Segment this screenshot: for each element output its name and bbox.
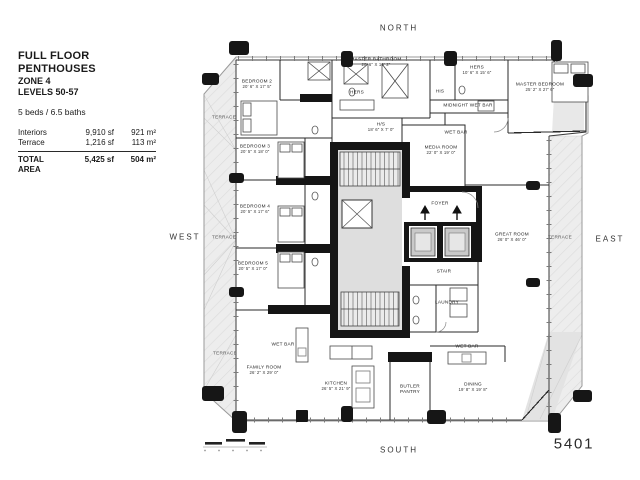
page-title: FULL FLOOR PENTHOUSES [18, 50, 168, 76]
compass-west: WEST [169, 233, 200, 242]
area-table: Interiors 9,910 sf 921 m² Terrace 1,216 … [18, 128, 156, 175]
elevator-bank [404, 222, 482, 262]
compass-south: SOUTH [380, 446, 418, 455]
area-sf: 5,425 sf [66, 155, 114, 175]
unit-number: 5401 [554, 436, 595, 453]
laundry-appliances [450, 288, 467, 317]
shower-icon-bed2 [308, 62, 330, 80]
bed-icon-bedroom2 [241, 101, 277, 135]
wet-bar-cabinet-master [478, 101, 494, 111]
scale-bar [203, 439, 267, 451]
bed-icon-bedroom3 [278, 142, 304, 178]
wet-bar-cabinet-dining [448, 352, 486, 364]
vanity-icon-master-bath [340, 100, 374, 110]
area-row-terrace: Terrace 1,216 sf 113 m² [18, 138, 156, 148]
wet-bar-cabinet-family [296, 328, 308, 362]
area-m2: 504 m² [114, 155, 156, 175]
area-row-total: TOTAL AREA 5,425 sf 504 m² [18, 151, 156, 175]
area-row-interiors: Interiors 9,910 sf 921 m² [18, 128, 156, 138]
elevator-up-arrows [421, 206, 461, 220]
levels-label: LEVELS 50-57 [18, 87, 168, 98]
zone-label: ZONE 4 [18, 76, 168, 87]
compass-east: EAST [596, 235, 625, 244]
area-sf: 1,216 sf [66, 138, 114, 148]
title-block: FULL FLOOR PENTHOUSES ZONE 4 LEVELS 50-5… [18, 50, 168, 175]
bed-icon-bedroom4 [278, 206, 304, 242]
area-label: Interiors [18, 128, 66, 138]
area-m2: 113 m² [114, 138, 156, 148]
area-label: TOTAL AREA [18, 155, 66, 175]
service-elevator [342, 200, 372, 228]
area-m2: 921 m² [114, 128, 156, 138]
kitchen-island [352, 366, 374, 408]
floorplan-page: FULL FLOOR PENTHOUSES ZONE 4 LEVELS 50-5… [0, 0, 640, 480]
bed-icon-bedroom5 [278, 252, 304, 288]
area-sf: 9,910 sf [66, 128, 114, 138]
area-label: Terrace [18, 138, 66, 148]
tub-icon-master-bath [382, 64, 408, 98]
beds-baths-label: 5 beds / 6.5 baths [18, 107, 168, 117]
kitchen-counter [330, 346, 372, 359]
compass-north: NORTH [380, 24, 418, 33]
